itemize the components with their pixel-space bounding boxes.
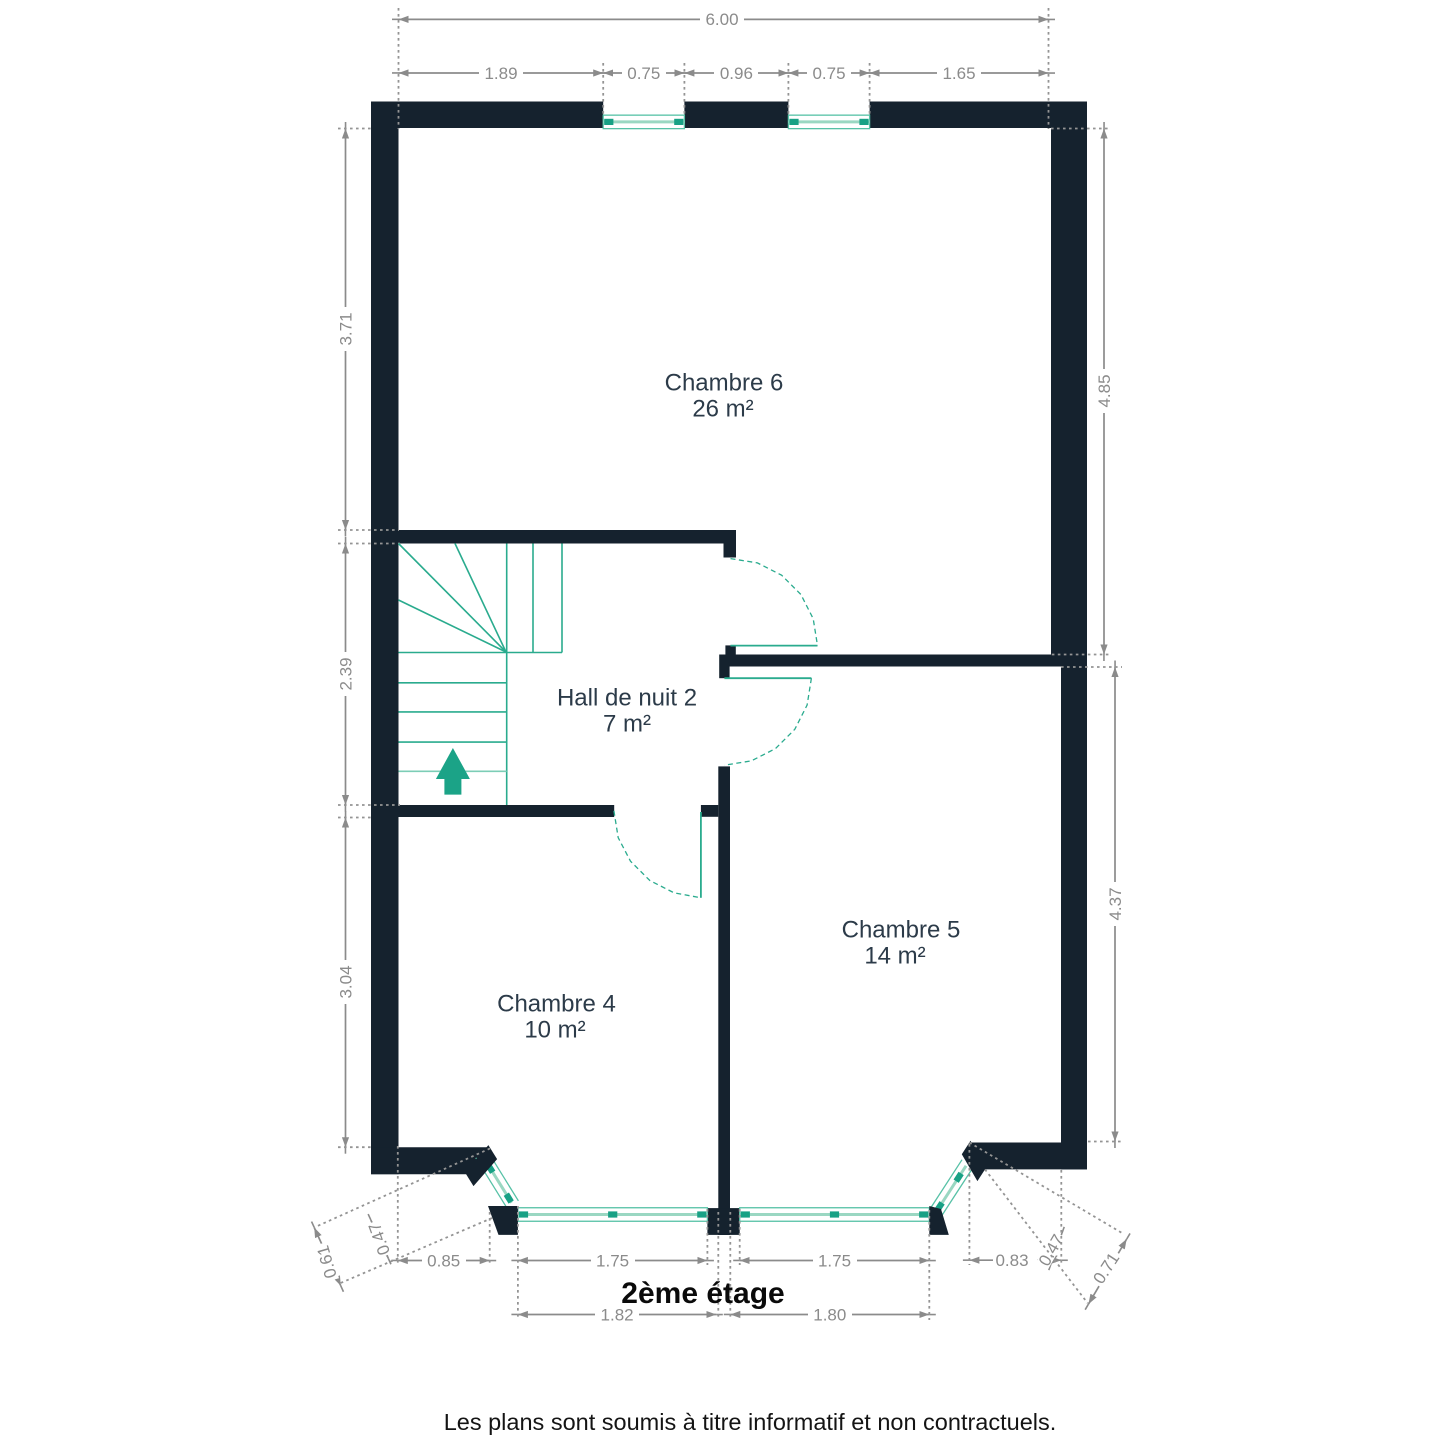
svg-text:6.00: 6.00 [705,10,738,29]
svg-text:0.96: 0.96 [720,64,753,83]
svg-text:0.83: 0.83 [995,1251,1028,1270]
svg-text:0.75: 0.75 [812,64,845,83]
svg-text:0.47: 0.47 [365,1220,394,1258]
svg-text:1.75: 1.75 [596,1252,629,1271]
svg-text:7 m²: 7 m² [603,711,651,738]
svg-text:1.89: 1.89 [484,64,517,83]
svg-text:26 m²: 26 m² [692,396,753,423]
svg-text:Chambre 6: Chambre 6 [665,370,784,397]
svg-text:4.85: 4.85 [1095,374,1114,407]
svg-text:Hall de nuit 2: Hall de nuit 2 [557,685,697,712]
svg-text:0.61: 0.61 [313,1243,340,1280]
svg-text:0.85: 0.85 [427,1252,460,1271]
svg-text:0.75: 0.75 [627,64,660,83]
svg-text:10 m²: 10 m² [524,1017,585,1044]
svg-text:3.71: 3.71 [337,312,356,345]
svg-text:Chambre 5: Chambre 5 [842,917,961,944]
svg-text:1.80: 1.80 [813,1305,846,1324]
svg-text:1.75: 1.75 [818,1252,851,1271]
svg-text:3.04: 3.04 [337,965,356,998]
svg-text:Les plans sont soumis à titre: Les plans sont soumis à titre informatif… [444,1409,1057,1435]
svg-text:2.39: 2.39 [337,657,356,690]
svg-text:1.65: 1.65 [942,64,975,83]
svg-text:14 m²: 14 m² [864,943,925,970]
svg-text:4.37: 4.37 [1106,887,1125,920]
svg-text:Chambre 4: Chambre 4 [497,991,616,1018]
svg-text:2ème étage: 2ème étage [621,1277,784,1310]
